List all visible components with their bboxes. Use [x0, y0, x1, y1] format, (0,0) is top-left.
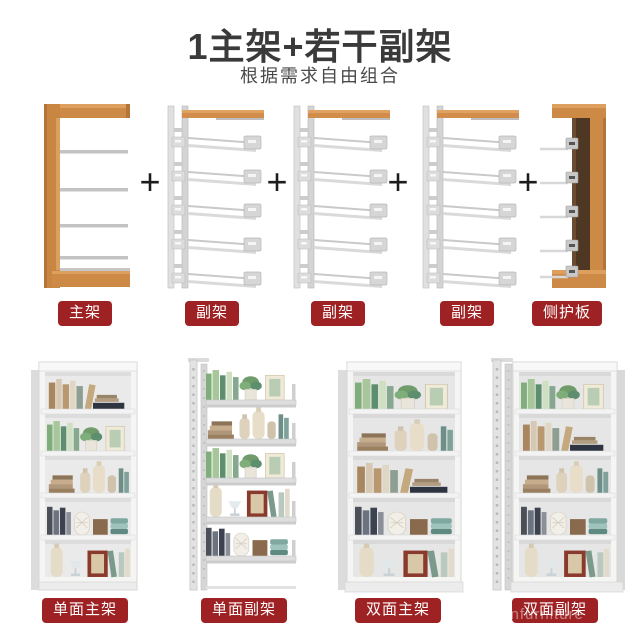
tag-text: 单面主架 — [42, 598, 128, 623]
tag-text: 副架 — [185, 301, 239, 326]
plus-icon: + — [514, 164, 542, 200]
double-addon-shelf-illustration — [485, 356, 633, 598]
single-addon-shelf-illustration — [178, 356, 303, 598]
plus-icon: + — [263, 164, 291, 200]
label-single-addon: 单面副架 — [179, 598, 309, 623]
double-main-shelf-illustration — [332, 356, 467, 598]
tag-text: 副架 — [311, 301, 365, 326]
label-double-addon: 双面副架 — [490, 598, 620, 623]
tag-text: 侧护板 — [532, 301, 602, 326]
addon-frame-illustration-2 — [278, 98, 398, 298]
plus-icon: + — [136, 164, 164, 200]
main-frame-illustration — [22, 98, 142, 298]
label-single-main: 单面主架 — [20, 598, 150, 623]
product-infographic: 1主架+若干副架 根据需求自由组合 — [0, 0, 640, 640]
label-addon-frame-2: 副架 — [278, 301, 398, 326]
label-addon-frame-1: 副架 — [152, 301, 272, 326]
tag-text: 主架 — [58, 301, 112, 326]
label-double-main: 双面主架 — [333, 598, 463, 623]
single-main-shelf-illustration — [25, 356, 150, 598]
tag-text: 双面主架 — [355, 598, 441, 623]
tag-text: 副架 — [440, 301, 494, 326]
page-subtitle: 根据需求自由组合 — [0, 62, 640, 88]
tag-text: 双面副架 — [512, 598, 598, 623]
addon-frame-illustration-1 — [152, 98, 272, 298]
plus-icon: + — [384, 164, 412, 200]
label-side-panel: 侧护板 — [507, 301, 627, 326]
addon-frame-illustration-3 — [407, 98, 527, 298]
label-main-frame: 主架 — [25, 301, 145, 326]
tag-text: 单面副架 — [201, 598, 287, 623]
